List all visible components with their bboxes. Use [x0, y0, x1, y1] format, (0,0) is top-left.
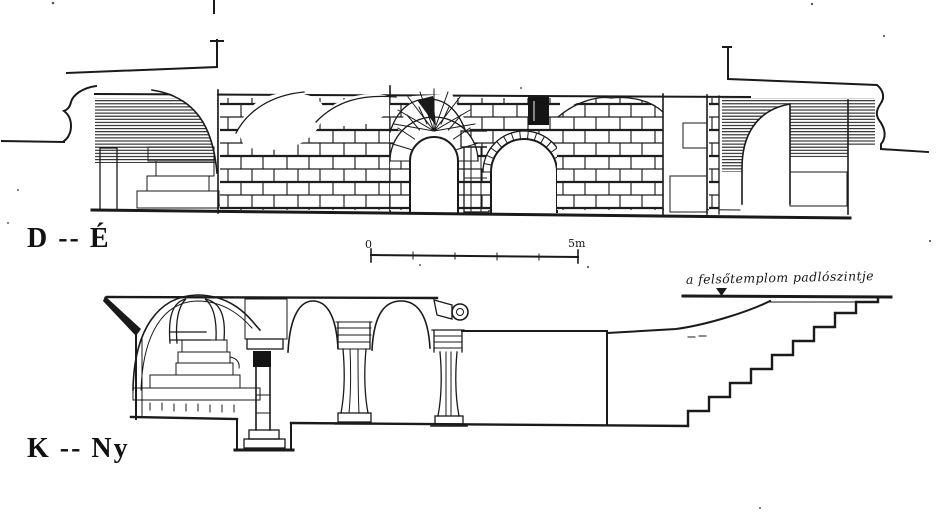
dome-inner-arc	[141, 301, 252, 390]
section-d-e: D -- É	[2, 1, 928, 254]
pedestal-top	[249, 430, 279, 439]
scanned-section-drawing-page: D -- É 0 5m	[0, 0, 950, 525]
section-k-ny: a felsőtemplom padlószintje K -- Ny	[27, 268, 891, 464]
scale-line	[371, 255, 578, 257]
cap-bands	[434, 336, 462, 348]
east-bay	[462, 301, 770, 425]
volute-knob	[452, 304, 468, 320]
floor-level-annotation: a felsőtemplom padlószintje	[686, 268, 874, 287]
column-shaft	[256, 367, 270, 430]
section-label-k-ny: K -- Ny	[27, 433, 130, 464]
volute-knob-inner	[457, 309, 464, 316]
base	[338, 413, 371, 422]
debris-dashes	[688, 336, 706, 337]
masonry-wall-1	[220, 86, 398, 212]
floor-level: a felsőtemplom padlószintje	[683, 268, 891, 302]
masonry-footing	[790, 172, 847, 206]
dark-window	[528, 97, 549, 125]
staircase	[688, 297, 878, 425]
ground-line-left	[67, 40, 223, 73]
banded-column-2	[335, 322, 374, 424]
finial-wedge	[434, 300, 452, 319]
fill-slope	[607, 301, 770, 333]
hatch-fill	[848, 98, 875, 145]
cap-sides	[432, 330, 464, 352]
opening-void	[410, 137, 458, 212]
base	[435, 416, 463, 424]
floor-ticks	[150, 403, 234, 412]
cap-bands	[336, 322, 372, 349]
dark-capital-block	[253, 351, 271, 367]
capital	[247, 339, 283, 349]
shaft-curves	[438, 352, 459, 416]
altar-steps	[133, 340, 260, 400]
cornice-left	[2, 86, 96, 142]
pedestal-base	[244, 439, 285, 448]
dome-1-apse	[131, 295, 260, 419]
right-vault-hatched	[722, 98, 875, 214]
dome-3-arc	[372, 301, 430, 350]
upper-floor-line	[683, 296, 891, 297]
opening-void	[491, 139, 557, 212]
dome-2-arc	[288, 301, 338, 352]
banded-column-3	[431, 300, 468, 426]
shaft-curves	[341, 349, 368, 413]
shaft-inner	[446, 352, 451, 416]
west-wall-wedge	[103, 296, 141, 336]
masonry-wall-2	[557, 94, 663, 214]
pit-outline	[237, 419, 291, 449]
crypt-section-drawing: D -- É 0 5m	[0, 0, 950, 525]
scale-bar: 0 5m	[365, 237, 586, 263]
corridor-gap	[664, 95, 719, 214]
shaft-joints	[256, 395, 270, 413]
dome-outer-arc	[133, 295, 260, 390]
narrow-pier	[709, 98, 719, 212]
masonry-fill	[557, 98, 663, 210]
central-column	[235, 299, 293, 450]
section-label-d-e: D -- É	[27, 223, 111, 254]
crypt-floor-west	[131, 417, 237, 419]
vault-top-line	[107, 297, 437, 298]
left-vault-hatched	[95, 89, 219, 213]
scale-end-label: 5m	[568, 237, 586, 250]
doorway-arch-1	[390, 89, 487, 212]
shaft-inner	[349, 349, 359, 413]
